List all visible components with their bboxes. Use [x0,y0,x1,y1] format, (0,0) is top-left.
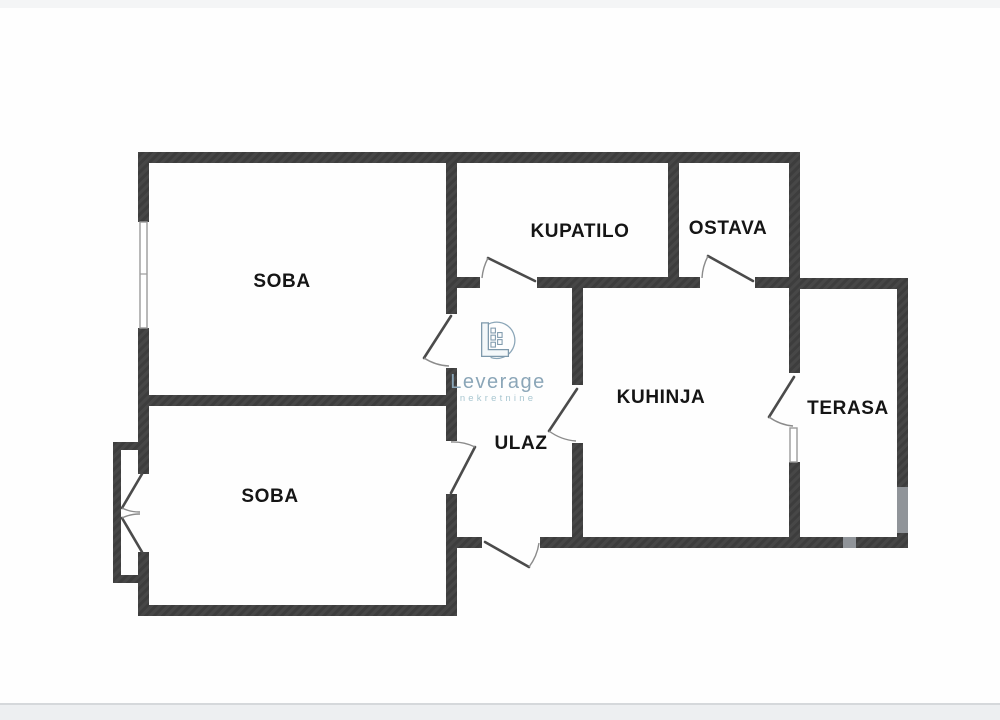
entrance-door-swing-arc [529,543,539,567]
wall-segment [572,288,583,385]
wall-segment [138,328,149,442]
kuhinja-door-leaf [549,389,577,431]
wall-segment [113,442,121,583]
wall-segment [138,552,149,575]
bay-door-upper-swing-arc [122,508,140,512]
wall-segment [446,163,457,314]
wall-segment [789,462,800,548]
room-label-kupatilo: KUPATILO [530,221,629,242]
soba-bottom-door-leaf [451,447,475,493]
building-in-circle-icon [472,311,524,369]
wall-segment [446,537,482,548]
wall-segment [138,395,457,406]
bay-door-lower-swing-arc [122,514,140,518]
room-label-soba-top: SOBA [253,271,310,292]
kupatilo-door-swing-arc [482,258,488,278]
soba-top-door-swing-arc [424,358,449,366]
logo-tagline-text: nekretnine [460,394,536,404]
bottom-band [0,703,1000,720]
wall-segment [537,277,700,288]
terasa-door-swing-arc [769,417,793,426]
doors-layer [122,256,794,567]
ostava-door-leaf [708,256,753,281]
logo-brand-text: Leverage [450,372,545,393]
bay-door-upper-leaf [122,474,142,508]
wall-segment [789,288,800,373]
kuhinja-door-swing-arc [549,431,576,441]
room-label-terasa: TERASA [807,398,889,419]
wall-segment [789,278,908,289]
bay-door-lower-leaf [122,518,142,552]
wall-segment-light [843,537,856,548]
soba-top-window-icon [140,222,147,328]
entrance-door-leaf [485,542,529,567]
wall-segment [138,450,149,474]
wall-segment [789,152,800,288]
soba-bottom-door-swing-arc [451,442,475,447]
wall-segment [138,152,149,222]
room-label-ostava: OSTAVA [689,218,768,239]
floorplan-page: SOBAKUPATILOOSTAVAKUHINJATERASASOBAULAZ … [0,0,1000,720]
wall-segment [446,494,457,616]
wall-segment [897,533,908,548]
room-label-kuhinja: KUHINJA [617,387,706,408]
wall-segment [138,605,457,616]
wall-segment [897,278,908,487]
kupatilo-door-leaf [488,258,535,281]
leverage-logo: Leverage nekretnine [450,311,546,404]
room-label-soba-bottom: SOBA [241,486,298,507]
wall-segment [138,152,800,163]
wall-segment [668,163,679,277]
wall-segment [583,537,843,548]
soba-top-door-leaf [424,316,451,358]
wall-segment [572,443,583,548]
wall-segment [540,537,583,548]
wall-segment [446,277,480,288]
terasa-door-leaf [769,377,794,417]
room-label-ulaz: ULAZ [494,433,547,454]
wall-segment-light [897,487,908,533]
ostava-door-swing-arc [702,256,708,278]
terasa-side-window-icon [790,428,797,462]
